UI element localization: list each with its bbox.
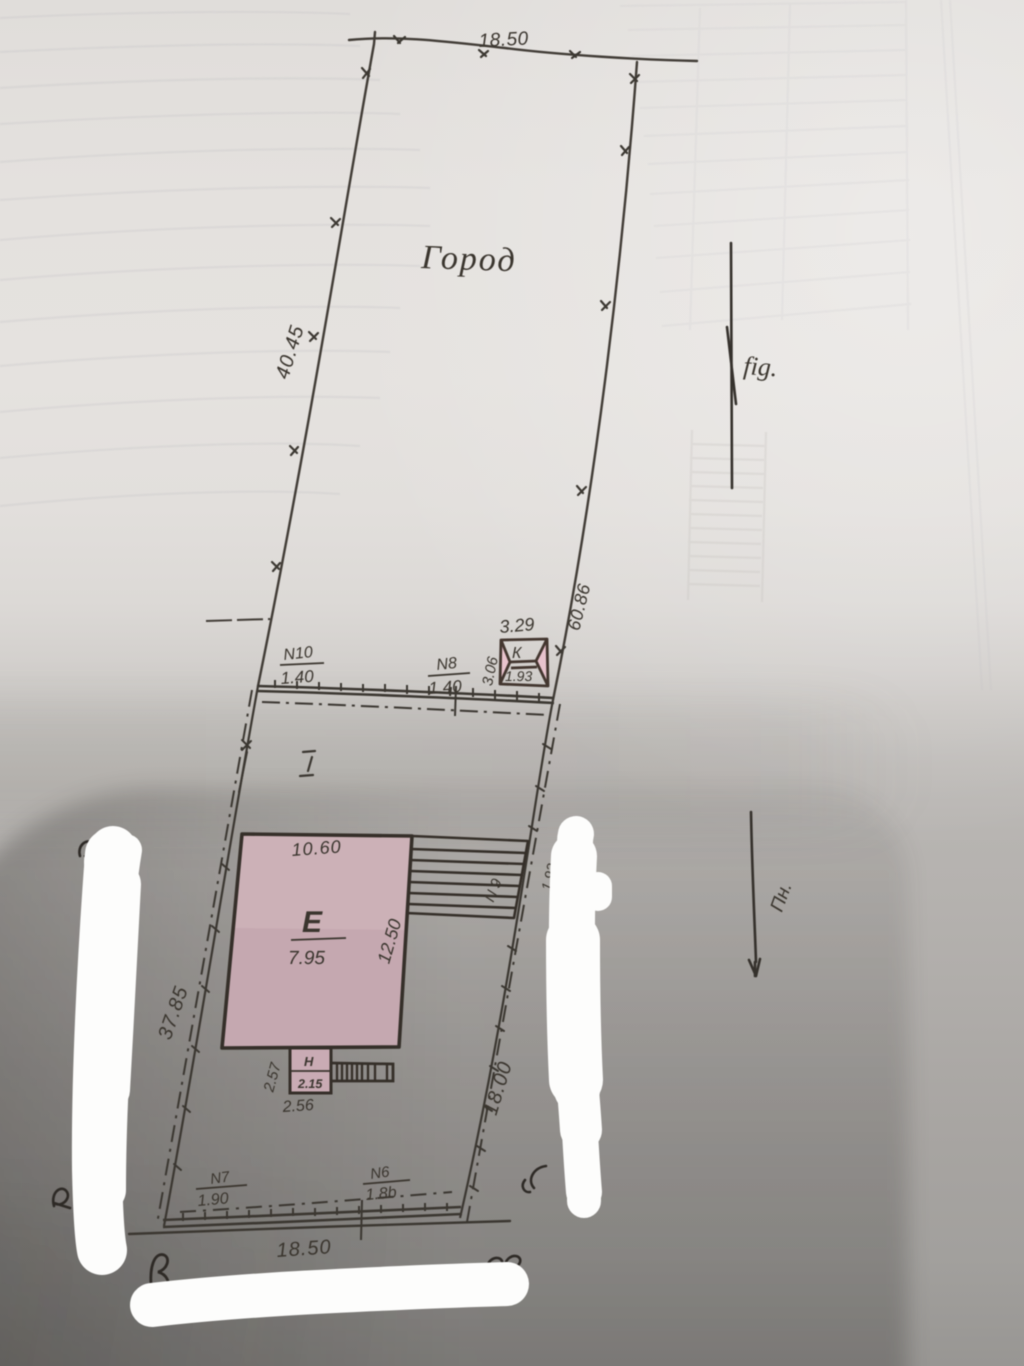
svg-text:N8: N8 <box>436 655 458 674</box>
svg-text:2.15: 2.15 <box>297 1077 323 1091</box>
svg-text:N10: N10 <box>283 644 314 664</box>
svg-text:1.40: 1.40 <box>428 677 463 698</box>
svg-text:3.29: 3.29 <box>499 614 536 637</box>
svg-text:2.56: 2.56 <box>281 1097 314 1116</box>
svg-text:18.50: 18.50 <box>276 1236 332 1262</box>
svg-text:60.86: 60.86 <box>564 581 595 632</box>
svg-text:18.50: 18.50 <box>478 28 529 52</box>
svg-text:Город: Город <box>420 239 518 279</box>
svg-text:3.06: 3.06 <box>479 655 502 688</box>
svg-text:37.85: 37.85 <box>154 983 193 1042</box>
svg-text:E: E <box>302 906 323 939</box>
svg-text:1.40: 1.40 <box>280 667 315 688</box>
svg-text:Пн.: Пн. <box>767 880 797 915</box>
svg-text:18.00: 18.00 <box>480 1059 517 1118</box>
svg-text:К: К <box>512 645 523 662</box>
svg-text:N 9: N 9 <box>481 876 506 905</box>
svg-text:1.8b: 1.8b <box>365 1184 398 1204</box>
svg-text:Н: Н <box>304 1054 314 1069</box>
svg-text:N7: N7 <box>209 1168 231 1188</box>
svg-text:1.93: 1.93 <box>505 668 532 684</box>
svg-text:fig.: fig. <box>743 351 779 382</box>
svg-text:2.57: 2.57 <box>260 1060 284 1094</box>
svg-text:10.60: 10.60 <box>291 837 342 860</box>
svg-text:1.90: 1.90 <box>197 1190 230 1210</box>
svg-text:N6: N6 <box>369 1163 391 1183</box>
svg-text:7.95: 7.95 <box>288 948 325 969</box>
